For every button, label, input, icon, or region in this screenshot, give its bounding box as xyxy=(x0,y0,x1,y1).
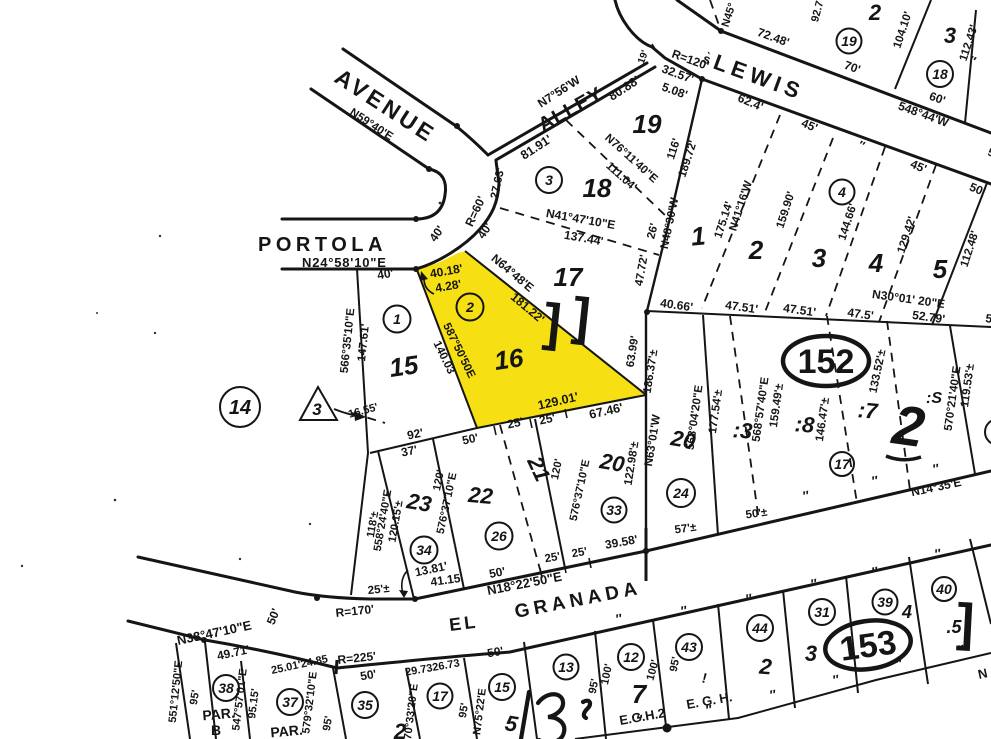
svg-text:3: 3 xyxy=(545,172,553,188)
svg-text:14: 14 xyxy=(229,397,251,419)
svg-text:13: 13 xyxy=(558,659,574,675)
svg-text::S: :S xyxy=(926,390,942,407)
svg-text:39: 39 xyxy=(877,594,893,610)
svg-text:17: 17 xyxy=(432,688,449,704)
svg-text:38: 38 xyxy=(218,680,234,696)
svg-text:50': 50' xyxy=(359,667,378,684)
svg-text:7: 7 xyxy=(632,679,648,709)
svg-text:34: 34 xyxy=(416,542,432,558)
svg-text:PAR.: PAR. xyxy=(202,705,236,724)
svg-text:153: 153 xyxy=(837,623,898,669)
svg-text:22: 22 xyxy=(466,482,494,509)
svg-text:19: 19 xyxy=(841,33,857,49)
svg-text:20: 20 xyxy=(668,425,698,454)
svg-text:25'±: 25'± xyxy=(367,583,391,597)
svg-text:26: 26 xyxy=(490,528,507,544)
svg-text:.5: .5 xyxy=(946,617,962,637)
svg-text:15: 15 xyxy=(494,679,510,695)
svg-text::3: :3 xyxy=(732,417,754,444)
svg-text:50': 50' xyxy=(486,644,505,661)
svg-text:17: 17 xyxy=(554,262,584,292)
svg-text:52: 52 xyxy=(985,311,991,327)
svg-text::8: :8 xyxy=(794,411,816,438)
svg-text:31: 31 xyxy=(814,604,830,620)
svg-text:B: B xyxy=(211,722,221,738)
svg-text:35: 35 xyxy=(357,697,373,713)
svg-text:43: 43 xyxy=(680,639,697,655)
svg-text:12: 12 xyxy=(623,649,639,665)
svg-text:5: 5 xyxy=(933,254,948,284)
svg-text:4: 4 xyxy=(868,248,884,278)
svg-text:2: 2 xyxy=(465,299,474,315)
svg-text:152: 152 xyxy=(798,343,855,381)
svg-text:3: 3 xyxy=(805,641,817,666)
svg-text:15: 15 xyxy=(387,349,420,383)
svg-text:3: 3 xyxy=(944,23,956,48)
svg-text:37: 37 xyxy=(282,694,299,710)
svg-text:24: 24 xyxy=(672,485,689,501)
svg-text:40: 40 xyxy=(935,581,952,597)
svg-text:4: 4 xyxy=(837,184,846,200)
svg-text:44: 44 xyxy=(751,620,768,636)
svg-text:18: 18 xyxy=(932,66,948,82)
svg-text:19: 19 xyxy=(633,109,662,139)
svg-text:3: 3 xyxy=(312,400,322,419)
svg-text:20: 20 xyxy=(597,448,627,477)
svg-text:EL: EL xyxy=(448,612,479,635)
svg-text:18: 18 xyxy=(583,173,612,203)
svg-text:16: 16 xyxy=(492,342,525,376)
svg-text:33: 33 xyxy=(606,502,622,518)
svg-text:PORTOLA: PORTOLA xyxy=(258,234,387,256)
svg-text:2: 2 xyxy=(868,0,882,25)
svg-text:23: 23 xyxy=(404,488,433,517)
svg-text:2: 2 xyxy=(748,235,764,265)
svg-text:1: 1 xyxy=(393,311,401,327)
svg-text:3: 3 xyxy=(812,243,827,273)
svg-text:40': 40' xyxy=(376,266,395,283)
svg-text:4: 4 xyxy=(901,602,912,622)
svg-text:17: 17 xyxy=(834,456,851,472)
svg-text:N24°58'10"E: N24°58'10"E xyxy=(302,255,387,270)
svg-text:1: 1 xyxy=(690,220,707,251)
svg-text:PAR.: PAR. xyxy=(270,722,304,739)
